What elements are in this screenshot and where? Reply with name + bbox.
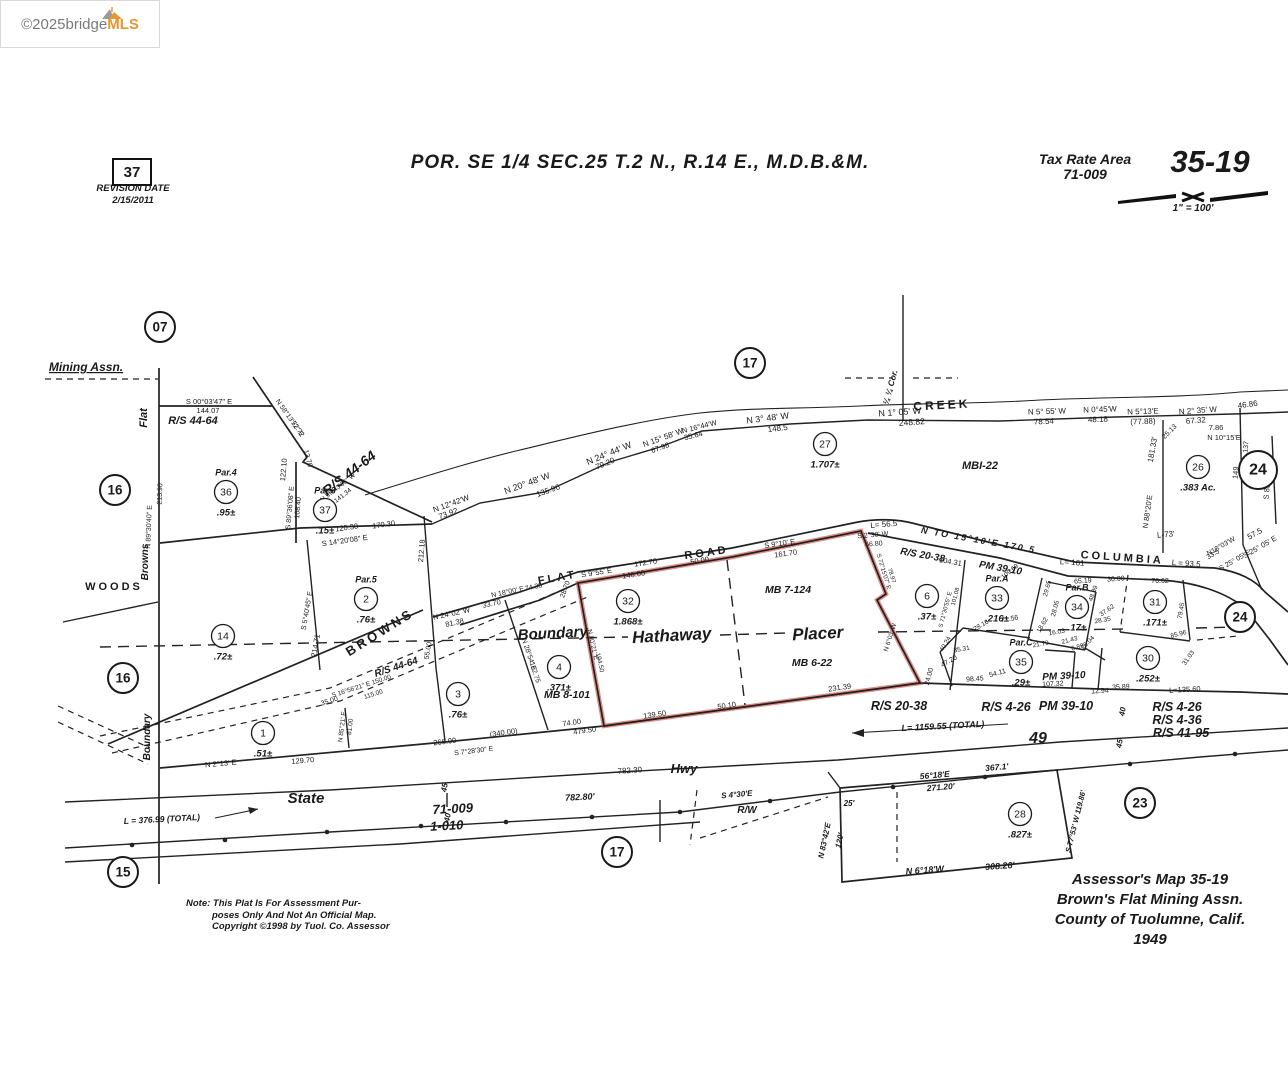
map-annotation: S 71°30'55" E: [938, 591, 953, 628]
parcel-circle-27: 271.707±: [811, 433, 841, 471]
svg-text:.252±: .252±: [1136, 674, 1160, 685]
parcel28-jog: [828, 772, 840, 788]
parcel-circle-26: 26.383 Ac.: [1180, 456, 1216, 494]
arrow-1159-head: [852, 729, 864, 737]
note-line-1: Note: This Plat Is For Assessment Pur-: [186, 898, 390, 910]
svg-text:.216±: .216±: [985, 614, 1009, 625]
map-annotation: 120.30: [335, 521, 359, 533]
south-boundary-line: [160, 683, 1288, 768]
map-annotation: N 89°30'40" E: [144, 505, 154, 549]
map-number: 35-19: [1150, 144, 1270, 180]
parcel-circle-36: 36Par.4.95±: [215, 468, 238, 519]
map-annotation: 29.65: [1042, 579, 1053, 597]
map-annotation: 212.18: [416, 539, 427, 563]
map-annotation: 162.75: [528, 661, 541, 684]
map-annotation: ¼ ¼ Cor.: [881, 369, 900, 406]
map-annotation: PM 39-10: [1042, 670, 1086, 683]
map-annotation: 35.89: [1112, 684, 1130, 692]
svg-text:.17±: .17±: [1068, 623, 1087, 634]
map-annotation: CREEK: [913, 397, 971, 414]
svg-text:34: 34: [1071, 602, 1083, 614]
map-annotation: 76.62: [1151, 578, 1169, 585]
revision-number-box: 37: [112, 158, 152, 186]
map-annotation: Hwy: [671, 761, 699, 776]
map-annotation: 25': [843, 799, 856, 808]
map-annotation: WOODS: [85, 581, 143, 593]
parcel-circle-28: 28.827±: [1008, 803, 1032, 841]
map-annotation: 172.70: [634, 556, 658, 568]
parcel-circle-31: 31.171±: [1143, 591, 1167, 629]
claim-line-2: [720, 633, 786, 635]
svg-text:1.707±: 1.707±: [811, 460, 841, 471]
parcel-circle-14: 14.72±: [212, 625, 235, 663]
map-annotation: Boundary: [142, 713, 153, 760]
map-annotation: N 6°18'W: [905, 864, 945, 877]
map-annotation: 16.03: [1048, 628, 1066, 638]
map-annotation: L= 56.5: [870, 519, 898, 530]
map-annotation: MB 6-22: [792, 657, 832, 669]
map-annotation: 40.24: [939, 635, 953, 653]
map-annotation: 115.00: [363, 688, 384, 701]
map-annotation: 12.94: [1091, 688, 1109, 696]
map-annotation: 13.70: [302, 449, 313, 468]
rw-dash-1: [690, 790, 697, 845]
district-circle-24: 24: [1239, 451, 1277, 489]
svg-text:35: 35: [1015, 657, 1027, 669]
map-annotation: 30.00: [1107, 575, 1125, 583]
map-annotation: S 4°30'E: [721, 789, 754, 801]
parcel-circle-35: 35Par.C.29±: [1009, 638, 1033, 689]
map-annotation: R/S 4-26: [981, 700, 1031, 714]
map-annotation: N TO 15°10'E 170.5: [920, 525, 1037, 555]
credit-line-3: County of Tuolumne, Calif.: [1030, 910, 1270, 930]
parcel3-4-boundary: [505, 600, 548, 730]
map-annotation: 45: [1114, 738, 1125, 750]
map-annotation: 782.30: [617, 765, 643, 776]
map-annotation: 28.05: [1050, 599, 1061, 617]
map-annotation: 98.45: [966, 675, 984, 683]
svg-text:16: 16: [115, 671, 131, 686]
map-annotation: 28.35: [1094, 616, 1112, 626]
map-annotation: S 5°40'45" E: [300, 590, 315, 630]
parcel-circle-32: 321.868±: [614, 590, 644, 628]
map-annotation: R/S 44-64: [168, 415, 218, 427]
map-annotation: 67.32: [1186, 415, 1207, 425]
svg-text:2: 2: [363, 594, 369, 606]
svg-text:Par.5: Par.5: [355, 575, 378, 585]
map-annotation: Boundary: [517, 623, 588, 644]
scale-label: 1" = 100': [1118, 203, 1268, 214]
svg-text:.383 Ac.: .383 Ac.: [1180, 483, 1216, 494]
parcel-circle-2: 2Par.5.76±: [355, 575, 378, 626]
svg-text:16: 16: [107, 483, 123, 498]
svg-text:24: 24: [1232, 610, 1248, 625]
map-annotation: 120': [834, 831, 846, 849]
svg-text:23: 23: [1132, 796, 1148, 811]
map-annotation: 71-009: [432, 800, 474, 817]
map-annotation: 308.26': [985, 860, 1016, 872]
svg-text:Par.A: Par.A: [985, 574, 1008, 584]
svg-text:3: 3: [455, 689, 461, 701]
svg-text:36: 36: [220, 487, 232, 499]
sw-dash-1: [58, 706, 150, 748]
map-annotation: 66.80: [865, 540, 883, 549]
parcel-circle-1: 1.51±: [252, 722, 275, 760]
svg-text:.76±: .76±: [357, 615, 376, 626]
svg-text:27: 27: [819, 439, 831, 451]
map-annotation: L = 376.99 (TOTAL): [123, 812, 200, 826]
map-annotation: 266.00: [433, 736, 457, 748]
map-annotation: N 2°13' E: [205, 758, 237, 770]
map-annotation: 47.20: [940, 654, 959, 669]
map-title: POR. SE 1/4 SEC.25 T.2 N., R.14 E., M.D.…: [340, 152, 940, 174]
map-annotation: N 88°20'E: [1141, 494, 1155, 529]
note-line-3: Copyright ©1998 by Tuol. Co. Assessor: [186, 921, 390, 933]
map-annotation: 170.30: [372, 518, 396, 530]
credit-line-4: 1949: [1030, 930, 1270, 950]
revision-date-label: REVISION DATE: [88, 183, 178, 194]
district-circle-16: 16: [100, 475, 130, 505]
map-annotation: N 10°15'E: [1207, 433, 1241, 442]
annotations-layer: Mining Assn.S 00°03'47" E144.07R/S 44-64…: [49, 360, 1278, 876]
svg-text:17: 17: [609, 845, 624, 860]
tax-rate-area-value: 71-009: [1015, 167, 1155, 182]
map-annotation: 35.00: [320, 696, 339, 708]
map-annotation: 57.5: [1246, 526, 1264, 542]
map-annotation: 271.20': [925, 781, 956, 794]
map-annotation: 21.79: [1032, 640, 1050, 650]
svg-text:Par.3: Par.3: [314, 486, 336, 496]
map-annotation: 55.00: [424, 641, 434, 660]
revision-date-value: 2/15/2011: [88, 195, 178, 206]
revision-number: 37: [124, 164, 141, 181]
svg-text:.51±: .51±: [254, 749, 273, 760]
svg-text:28: 28: [1014, 809, 1026, 821]
map-annotation: L-73': [1157, 529, 1176, 540]
district-circle-17: 17: [735, 348, 765, 378]
map-annotation: L=135.60: [1169, 684, 1201, 695]
map-annotation: Flat: [138, 407, 150, 428]
map-annotation: 122.10: [278, 458, 289, 482]
svg-text:Par.C: Par.C: [1009, 638, 1033, 648]
map-annotation: 248.82: [898, 416, 925, 428]
parcel-circle-3: 3.76±: [447, 683, 470, 721]
svg-text:.76±: .76±: [449, 710, 468, 721]
svg-text:.15±: .15±: [316, 526, 335, 537]
map-annotation: Hathaway: [632, 624, 714, 647]
svg-text:07: 07: [152, 320, 167, 335]
rw-dash-2: [700, 797, 828, 838]
district-circle-17: 17: [602, 837, 632, 867]
parcel-circle-33: 33Par.A.216±: [985, 574, 1009, 625]
svg-text:.72±: .72±: [214, 652, 233, 663]
map-annotation: S 7°28'30" E: [454, 745, 494, 758]
district-circle-23: 23: [1125, 788, 1155, 818]
map-annotation: R/S 4-26: [1152, 700, 1202, 714]
tax-rate-area-label: Tax Rate Area: [1015, 152, 1155, 167]
map-annotation: N 5° 55' W: [1028, 406, 1067, 416]
svg-text:1: 1: [260, 728, 266, 740]
parcel-circle-6: 6.37±: [916, 585, 939, 623]
svg-text:6: 6: [924, 591, 930, 603]
credit-line-2: Brown's Flat Mining Assn.: [1030, 890, 1270, 910]
map-annotation: Placer: [792, 623, 845, 645]
map-annotation: 146.00: [622, 568, 646, 580]
subject-parcel-highlight[interactable]: [578, 531, 920, 726]
map-annotation: 35.31: [953, 645, 971, 655]
map-annotation: (340.00): [489, 726, 518, 739]
map-annotation: 79.45: [1177, 602, 1187, 620]
svg-text:24: 24: [1249, 462, 1267, 479]
map-annotation: 81.00: [346, 718, 355, 735]
map-annotation: S 25° 05' E: [1218, 548, 1252, 573]
map-credit-block: Assessor's Map 35-19 Brown's Flat Mining…: [1030, 870, 1270, 950]
district-circle-15: 15: [108, 857, 138, 887]
district-circle-16: 16: [108, 663, 138, 693]
parcel2-east-line: [424, 516, 445, 741]
map-annotation: 78.54: [1034, 417, 1055, 427]
map-annotation: 54.11: [988, 668, 1006, 679]
subject-parcel-outline: [578, 531, 920, 726]
assessor-map-page: { "watermark": {"prefix": "©2025 ", "bra…: [0, 0, 1288, 1080]
svg-text:32: 32: [622, 596, 634, 608]
svg-text:14: 14: [217, 631, 229, 643]
map-annotation: (77.88): [1130, 417, 1156, 427]
arrow-376-head: [248, 807, 258, 814]
bridgemls-logo-icon: [100, 7, 126, 19]
svg-text:.29±: .29±: [1012, 678, 1031, 689]
assessment-note: Note: This Plat Is For Assessment Pur- p…: [186, 898, 390, 933]
map-annotation: 45: [439, 782, 450, 794]
svg-text:.95±: .95±: [217, 508, 236, 519]
map-annotation: Mining Assn.: [49, 360, 123, 374]
map-annotation: BROWNS: [343, 605, 416, 659]
map-annotation: PM 39-10: [1039, 699, 1093, 713]
svg-text:26: 26: [1192, 462, 1204, 474]
map-annotation: 26.04: [1080, 634, 1097, 651]
map-annotation: 181.33': [1146, 436, 1159, 464]
note-line-2: poses Only And Not An Official Map.: [186, 910, 390, 922]
map-annotation: N 18°00' E: [490, 585, 525, 600]
map-annotation: 85.96: [1170, 629, 1188, 640]
credit-line-1: Assessor's Map 35-19: [1030, 870, 1270, 890]
map-annotation: 161.70: [774, 547, 798, 559]
map-annotation: 31.03: [1181, 649, 1196, 667]
district-circle-07: 07: [145, 312, 175, 342]
map-annotation: 213.90: [157, 483, 165, 505]
svg-text:31: 31: [1149, 597, 1161, 609]
map-annotation: 25.13: [1161, 423, 1178, 440]
map-annotation: State: [288, 790, 325, 807]
map-annotation: 367.1': [985, 761, 1010, 773]
map-annotation: 48.18: [1088, 415, 1109, 425]
parcel-circle-4: 4.371±: [547, 656, 571, 694]
parcel32-inner-dash: [727, 560, 745, 705]
district-circle-24: 24: [1225, 602, 1255, 632]
map-annotation: MB 7-124: [765, 584, 811, 596]
map-annotation: FLAT: [537, 569, 578, 588]
map-annotation: 104.31: [938, 555, 962, 568]
svg-text:.371±: .371±: [547, 683, 571, 694]
map-annotation: R/W: [737, 805, 758, 816]
map-annotation: S 16°56'21" E 150.00: [331, 673, 393, 700]
map-annotation: S 77°53' W 119.86': [1063, 789, 1087, 853]
parcel-circle-30: 30.252±: [1136, 647, 1160, 685]
svg-text:.37±: .37±: [918, 612, 937, 623]
map-annotation: 40: [1117, 706, 1128, 718]
map-annotation: R/S 4-36: [1152, 713, 1202, 727]
map-annotation: 129.70: [291, 755, 315, 766]
mls-watermark: ©2025 bridgeMLS: [0, 0, 160, 48]
parcel28-outline: [840, 770, 1072, 882]
parcel-circle-34: 34Par.B.17±: [1065, 583, 1089, 634]
svg-text:17: 17: [742, 356, 757, 371]
svg-text:Par.4: Par.4: [215, 468, 237, 478]
map-annotation: 108.40: [294, 497, 303, 519]
map-annotation: 135.96: [535, 482, 562, 499]
svg-text:1.868±: 1.868±: [614, 617, 644, 628]
map-annotation: 46.86: [1237, 399, 1259, 411]
map-annotation: 148.5: [767, 423, 789, 434]
map-annotation: 782.80': [565, 791, 596, 803]
watermark-year: ©2025: [21, 16, 65, 33]
map-annotation: 7.86: [1209, 423, 1224, 432]
map-annotation: N 5°13'E: [1127, 406, 1159, 416]
svg-text:33: 33: [991, 593, 1003, 605]
map-annotation: R/S 20-38: [871, 699, 927, 713]
svg-text:15: 15: [115, 865, 131, 880]
map-annotation: 49: [1028, 730, 1047, 747]
parcel-circle-37: 37Par.3.15±: [314, 486, 337, 537]
map-annotation: 144.07: [197, 406, 220, 415]
map-annotation: L = 93.5: [1171, 558, 1201, 569]
map-annotation: MBI-22: [962, 460, 998, 472]
map-annotation: S 00°03'47" E: [186, 397, 232, 406]
svg-text:37: 37: [319, 505, 331, 517]
map-annotation: 50.00: [690, 555, 710, 567]
creek-traverse-line: [432, 412, 1288, 524]
map-annotation: R/S 41-95: [1153, 726, 1210, 740]
map-annotation: L= 161: [1060, 557, 1086, 568]
svg-text:.827±: .827±: [1008, 830, 1032, 841]
map-annotation: N 83°42'E: [816, 821, 832, 859]
woods-line: [63, 602, 158, 622]
svg-text:4: 4: [556, 662, 562, 674]
map-annotation: 479.50: [573, 724, 597, 736]
map-annotation: N 0°45'W: [1083, 404, 1117, 414]
map-annotation: 48.89: [1088, 584, 1100, 602]
map-annotation: L= 1159.55 (TOTAL): [901, 719, 984, 733]
svg-text:Par.B: Par.B: [1065, 583, 1089, 593]
tax-rate-area-block: Tax Rate Area 71-009: [1015, 152, 1155, 182]
map-annotation: 137: [1243, 441, 1251, 453]
svg-text:.171±: .171±: [1143, 618, 1167, 629]
claim-line-3: [878, 629, 1128, 632]
svg-text:30: 30: [1142, 653, 1154, 665]
